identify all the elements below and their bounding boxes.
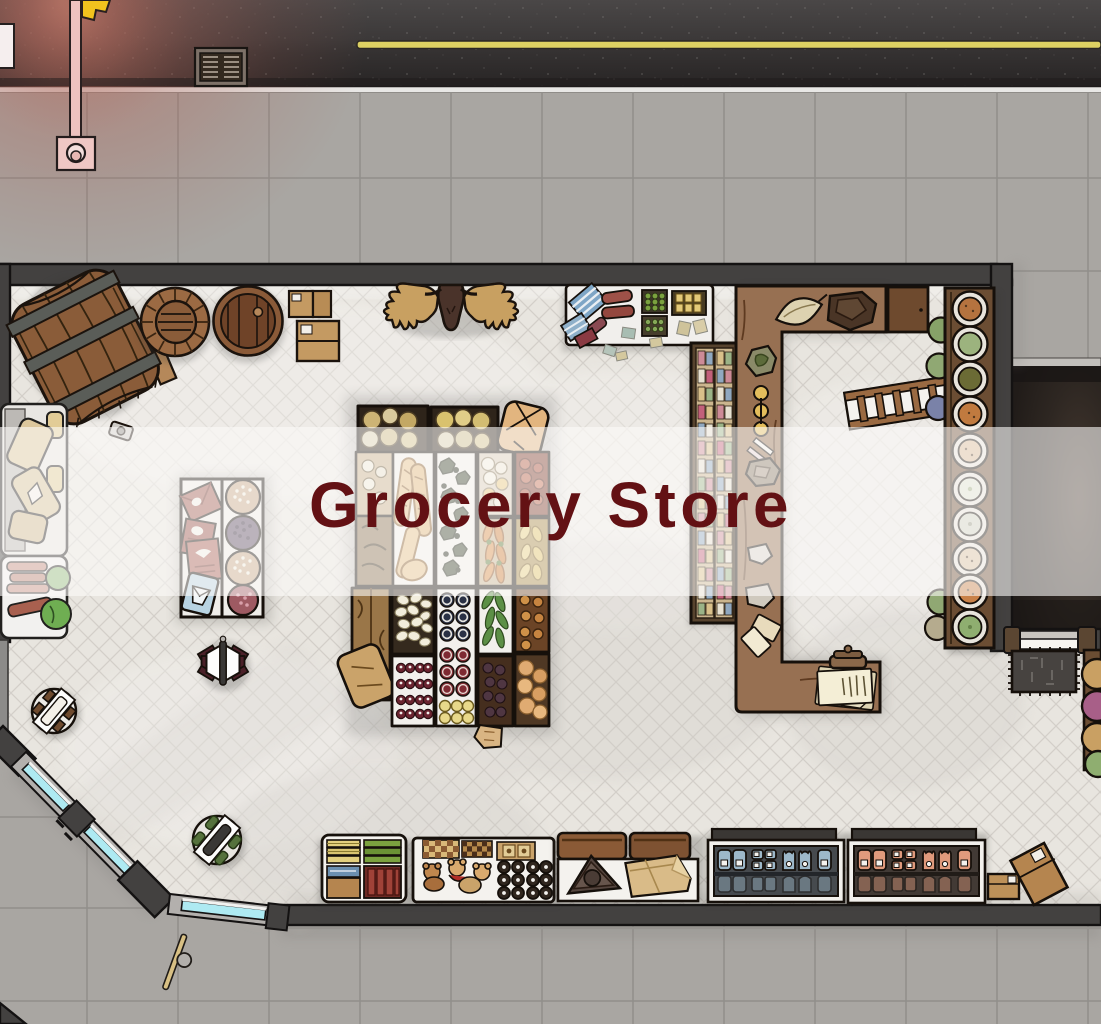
svg-text:Grocery Store: Grocery Store (309, 469, 793, 541)
